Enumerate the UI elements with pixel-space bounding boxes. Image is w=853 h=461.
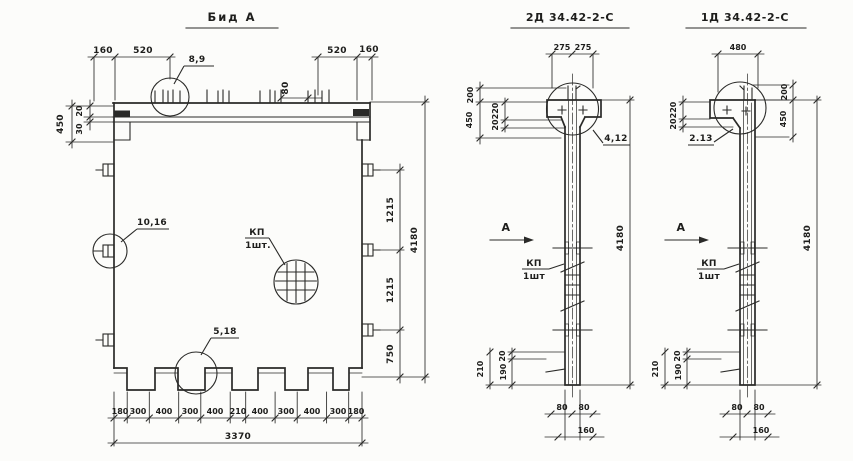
dim-200-s1: 200 [780, 83, 789, 100]
dim-4180-s1: 4180 [803, 225, 813, 251]
dim-b7: 300 [278, 407, 295, 416]
dim-b9: 300 [330, 407, 347, 416]
detail-callout-10-16: 10,16 [93, 218, 169, 268]
dim-30-main: 30 [75, 123, 84, 135]
dim-4180-s2: 4180 [616, 225, 626, 251]
dim-4180-main: 4180 [410, 227, 420, 253]
dim-80b-s2: 80 [578, 403, 590, 412]
dim-450-main: 450 [56, 114, 66, 134]
section-mark-s2: А [501, 221, 510, 234]
section-mark-s1: А [676, 221, 685, 234]
top-dowel-teeth [155, 90, 329, 103]
detail-label-2-13: 2.13 [689, 134, 712, 144]
dim-160-left: 160 [93, 46, 113, 56]
dim-450-s1: 450 [779, 110, 788, 127]
dim-20-s2: 20 [491, 119, 500, 131]
dim-275-b: 275 [575, 43, 592, 52]
section-1d-title: 1Д 34.42-2-С [701, 11, 789, 24]
main-view: Бид А [56, 10, 429, 446]
dim-b0: 180 [112, 407, 129, 416]
dim-520-right: 520 [327, 46, 347, 56]
detail-callout-5-18: 5,18 [175, 327, 239, 394]
dim-b5: 210 [230, 407, 247, 416]
kp-qty-label: 1шт. [245, 241, 271, 251]
section-arrow-s2: А [490, 221, 534, 244]
dim-1215-upper: 1215 [386, 197, 396, 223]
dim-190-s1: 190 [674, 363, 683, 380]
main-bottom-dimensions: 180 300 400 300 400 210 400 300 400 300 … [108, 392, 368, 446]
dim-20-foot-s1: 20 [673, 350, 682, 362]
dim-b2: 400 [156, 407, 173, 416]
kp-qty-s1: 1шт [698, 272, 720, 282]
dim-3370: 3370 [225, 432, 251, 442]
main-left-dimensions: 450 20 30 [56, 100, 113, 148]
dim-80b-s1: 80 [753, 403, 765, 412]
dim-80-teeth: 80 [281, 81, 291, 94]
dim-210-s1: 210 [651, 360, 660, 377]
kp-label-s1: КП [701, 259, 717, 269]
section-arrow-s1: А [665, 221, 709, 244]
dim-190-s2: 190 [499, 363, 508, 380]
main-view-title: Бид А [207, 10, 256, 24]
technical-drawing: Бид А [0, 0, 853, 461]
section-2d-title: 2Д 34.42-2-С [526, 11, 614, 24]
section-1d-detail-circle [714, 82, 766, 134]
kp-label-s2: КП [526, 259, 542, 269]
section-2d-column [546, 74, 601, 400]
dim-210-s2: 210 [476, 360, 485, 377]
side-bolts [94, 164, 380, 346]
dim-20-main: 20 [75, 105, 84, 117]
dim-b3: 300 [182, 407, 199, 416]
dim-160-s1: 160 [753, 426, 770, 435]
kp-mesh-callout: КП 1шт. [245, 228, 320, 306]
left-bolt-2 [94, 245, 114, 257]
dim-1215-lower: 1215 [386, 277, 396, 303]
kp-label: КП [249, 228, 265, 238]
dim-450-s2: 450 [465, 111, 474, 128]
detail-label-4-12: 4,12 [604, 134, 627, 144]
dim-220-s2: 220 [491, 102, 500, 119]
detail-label-8-9: 8,9 [189, 55, 206, 65]
dim-80a-s2: 80 [556, 403, 568, 412]
main-right-dimensions: 1215 1215 750 4180 [362, 96, 429, 383]
detail-label-5-18: 5,18 [213, 327, 236, 337]
dim-b10: 180 [348, 407, 365, 416]
dim-220-s1: 220 [669, 101, 678, 118]
dim-480: 480 [730, 43, 747, 52]
dim-20-foot-s2: 20 [498, 350, 507, 362]
dim-160-right: 160 [359, 45, 379, 55]
dim-750: 750 [386, 344, 396, 364]
dim-b4: 400 [207, 407, 224, 416]
dim-200-s2: 200 [466, 86, 475, 103]
main-panel-outline [113, 103, 370, 390]
dim-b8: 400 [304, 407, 321, 416]
detail-callout-8-9: 8,9 [151, 55, 214, 116]
left-bolt-1 [96, 164, 114, 176]
main-top-dimensions: 160 520 520 160 80 [88, 45, 379, 101]
detail-label-10-16: 10,16 [137, 218, 167, 228]
dim-160-s2: 160 [578, 426, 595, 435]
section-1d-column [710, 74, 767, 400]
dim-520-left: 520 [133, 46, 153, 56]
dim-275-a: 275 [554, 43, 571, 52]
section-1d: 1Д 34.42-2-С 480 2.13 220 20 [651, 11, 821, 440]
dim-20-s1: 20 [669, 118, 678, 130]
dim-b6: 400 [252, 407, 269, 416]
left-bolt-3 [96, 334, 114, 346]
dim-80a-s1: 80 [731, 403, 743, 412]
kp-qty-s2: 1шт [523, 272, 545, 282]
section-2d: 2Д 34.42-2-С 275 275 4,12 [465, 11, 634, 440]
dim-b1: 300 [130, 407, 147, 416]
drawing-sheet: Бид А [0, 0, 853, 461]
